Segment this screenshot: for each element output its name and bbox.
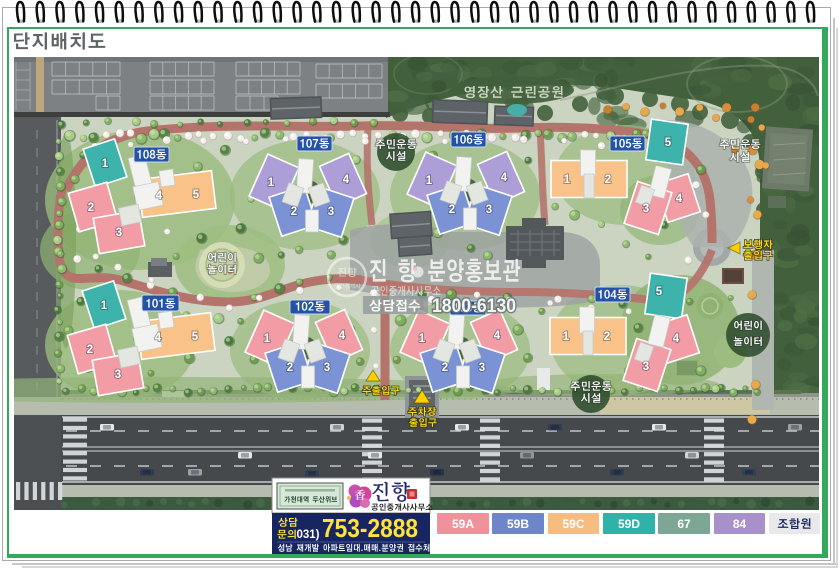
svg-text:67: 67 [677,517,691,531]
svg-text:031): 031) [296,529,319,541]
svg-text:59A: 59A [452,517,474,531]
svg-text:59D: 59D [618,517,640,531]
svg-text:59B: 59B [507,517,529,531]
svg-text:59C: 59C [562,517,584,531]
svg-text:753-2888: 753-2888 [322,513,418,543]
svg-text:84: 84 [733,517,747,531]
